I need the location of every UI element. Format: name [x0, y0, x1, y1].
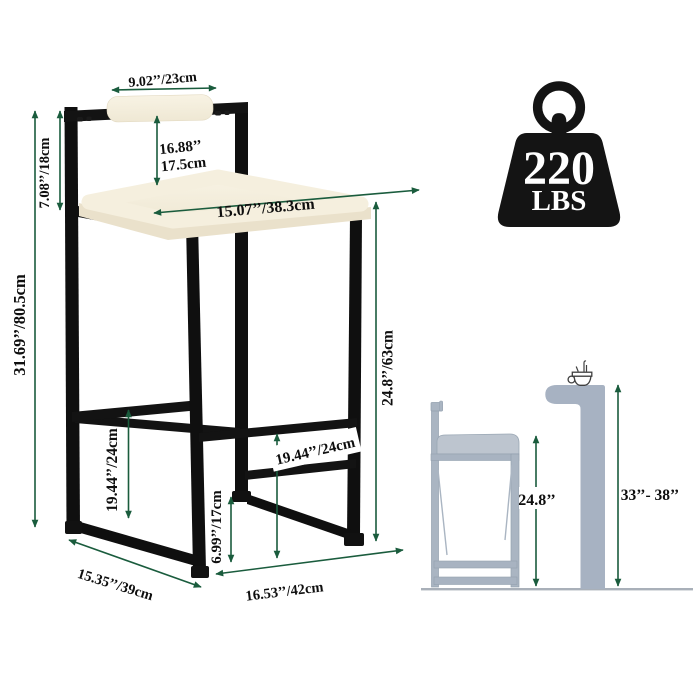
svg-text:LBS: LBS [532, 185, 587, 217]
svg-text:6.99’’/17cm: 6.99’’/17cm [209, 490, 225, 564]
svg-text:33’’- 38’’: 33’’- 38’’ [621, 487, 679, 504]
svg-text:24.8’’: 24.8’’ [518, 492, 555, 509]
svg-text:24.8’’/63cm: 24.8’’/63cm [380, 330, 397, 406]
svg-text:19.44’’/24cm: 19.44’’/24cm [104, 428, 121, 512]
svg-text:7.08’’/18cm: 7.08’’/18cm [37, 138, 53, 209]
svg-text:31.69’’/80.5cm: 31.69’’/80.5cm [10, 274, 29, 376]
